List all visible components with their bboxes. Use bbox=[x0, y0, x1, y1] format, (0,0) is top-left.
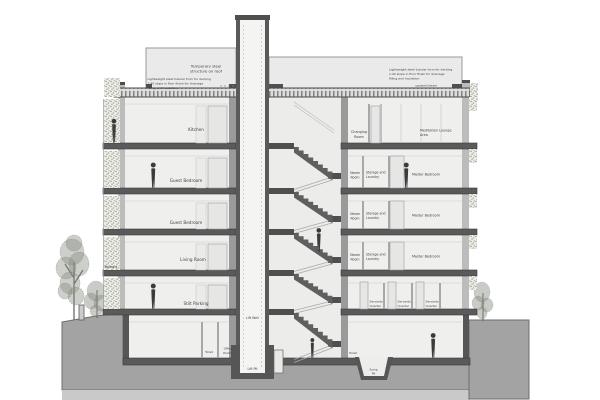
label-changing-room: Room bbox=[354, 135, 364, 139]
label-lift-pit: Lift Pit bbox=[248, 367, 259, 371]
right-wing-rooms bbox=[348, 97, 463, 358]
planting-band bbox=[469, 276, 477, 290]
label-master-bedroom-f3: Master Bedroom bbox=[412, 214, 441, 218]
planting-band bbox=[104, 196, 120, 229]
label-changing-room: Changing bbox=[351, 130, 367, 134]
label-storage-laundry-f4: Storage and bbox=[366, 171, 385, 175]
label-storage-laundry-f3: Laundry bbox=[366, 216, 379, 220]
label-lift-well: Lift Well bbox=[246, 316, 259, 320]
stair-foundation-stub bbox=[274, 350, 283, 373]
label-deck-note-right: filling and insulation bbox=[389, 77, 419, 81]
planting-band bbox=[104, 151, 120, 188]
label-guest-bedroom-2: Guest Bedroom bbox=[170, 220, 203, 225]
label-deck-note-left: filling and insulation bbox=[148, 86, 178, 90]
left-core-wall bbox=[229, 97, 236, 358]
label-deck-note-left: 1:40 slope in floor finish for drainage bbox=[148, 82, 204, 86]
label-toilet-right: Toilet bbox=[348, 351, 358, 355]
label-guest-bedroom-1: Guest Bedroom bbox=[170, 178, 203, 183]
label-office-pantry: Office bbox=[224, 347, 233, 351]
label-temporary-structure: structure on roof bbox=[190, 68, 222, 73]
right-core-wall bbox=[341, 97, 348, 358]
label-stilt-parking: Stilt Parking bbox=[183, 301, 208, 306]
label-living-room: Living Room bbox=[180, 257, 206, 262]
label-meditation-lounge: Meditation Lounge bbox=[420, 129, 452, 133]
label-steam-room-f2: Room bbox=[350, 258, 359, 262]
label-master-bedroom-f4: Master Bedroom bbox=[412, 173, 441, 177]
label-storage-laundry-f3: Storage and bbox=[366, 212, 385, 216]
right-facade-wall bbox=[462, 97, 469, 315]
label-servants-quarter-1: Servants bbox=[370, 300, 384, 304]
label-balcony: Balcony bbox=[105, 265, 118, 269]
label-meditation-lounge: Area bbox=[420, 133, 428, 137]
label-steam-room-f4: Room bbox=[350, 176, 359, 180]
label-servants-quarter-2: Quarter bbox=[398, 304, 410, 308]
label-steam-room-f3: Steam bbox=[350, 212, 360, 216]
label-steam-room-f3: Room bbox=[350, 217, 359, 221]
label-servants-quarter-3: Quarter bbox=[426, 304, 438, 308]
label-kitchen: Kitchen bbox=[188, 127, 204, 132]
planting-band bbox=[469, 194, 477, 208]
label-servants-quarter-2: Servants bbox=[398, 300, 412, 304]
ground-strip-lower bbox=[62, 390, 470, 400]
label-master-bedroom-f2: Master Bedroom bbox=[412, 255, 441, 259]
label-toilet-left: Toilet bbox=[204, 350, 214, 354]
upstand-beam-shape bbox=[269, 84, 283, 88]
label-steam-room-f4: Steam bbox=[350, 171, 360, 175]
label-storage-laundry-f2: Laundry bbox=[366, 257, 379, 261]
label-storage-laundry-f2: Storage and bbox=[366, 253, 385, 257]
label-office-pantry: Pantry bbox=[223, 351, 233, 355]
architectural-section-canvas: Temporary steel structure on roof Lightw… bbox=[0, 0, 600, 400]
label-deck-note-right: Lightweight steel tubular form for decki… bbox=[389, 68, 452, 72]
label-storage-laundry-f4: Laundry bbox=[366, 175, 379, 179]
planting-band bbox=[104, 78, 120, 97]
planting-band bbox=[469, 235, 477, 249]
planting-band bbox=[469, 97, 477, 111]
label-servants-quarter-3: Servants bbox=[426, 300, 440, 304]
upstand-beam-shape bbox=[452, 84, 462, 88]
basement-wall-left bbox=[123, 315, 129, 365]
label-servants-quarter-1: Quarter bbox=[370, 304, 382, 308]
label-deck-note-right: 1:40 slope in floor finish for drainage bbox=[389, 72, 445, 76]
label-deck-note-left: Lightweight steel tubular form for decki… bbox=[148, 77, 211, 81]
planting-band bbox=[104, 278, 120, 309]
label-upstand-beam: upstand beam bbox=[415, 84, 437, 88]
ground-block-right bbox=[469, 320, 529, 399]
basement-wall-right bbox=[463, 315, 469, 365]
garden-post bbox=[79, 305, 84, 320]
label-steam-room-f2: Steam bbox=[350, 253, 360, 257]
building-section-drawing: Temporary steel structure on roof Lightw… bbox=[0, 0, 600, 400]
planting-band bbox=[469, 149, 477, 163]
